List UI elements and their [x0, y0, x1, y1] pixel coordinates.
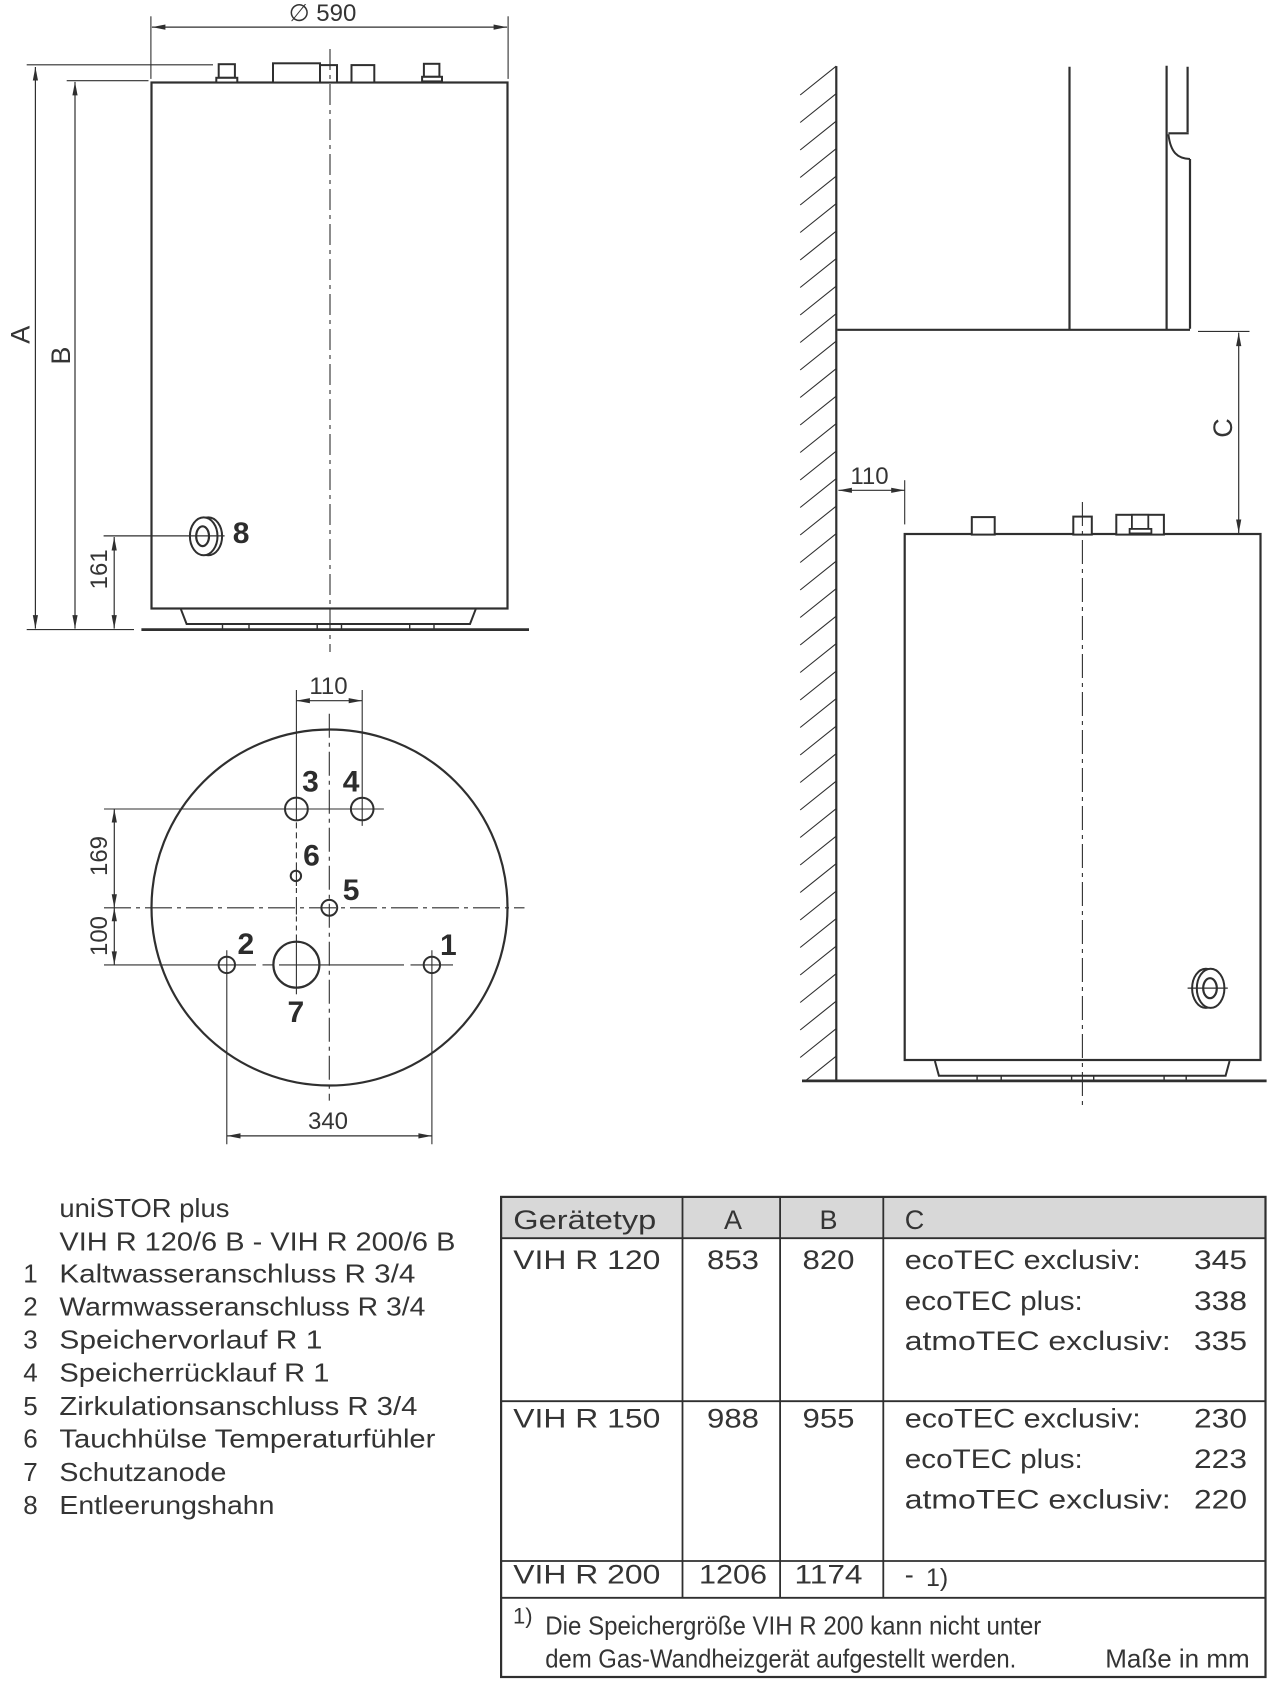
- svg-text:VIH R 150: VIH R 150: [513, 1404, 660, 1434]
- svg-text:ecoTEC exclusiv:: ecoTEC exclusiv:: [905, 1404, 1141, 1434]
- svg-text:853: 853: [707, 1245, 759, 1275]
- svg-text:7: 7: [23, 1457, 37, 1487]
- svg-text:335: 335: [1194, 1326, 1247, 1356]
- svg-text:Zirkulationsanschluss R 3/4: Zirkulationsanschluss R 3/4: [59, 1391, 417, 1421]
- svg-text:1206: 1206: [699, 1560, 767, 1590]
- svg-text:3: 3: [302, 766, 319, 799]
- svg-text:7: 7: [287, 996, 304, 1029]
- svg-text:1): 1): [513, 1604, 533, 1629]
- svg-text:340: 340: [308, 1108, 348, 1135]
- svg-text:Entleerungshahn: Entleerungshahn: [59, 1490, 274, 1520]
- svg-text:atmoTEC exclusiv:: atmoTEC exclusiv:: [905, 1484, 1171, 1514]
- svg-text:1174: 1174: [795, 1560, 863, 1590]
- svg-text:uniSTOR plus: uniSTOR plus: [59, 1193, 229, 1223]
- svg-text:8: 8: [23, 1490, 37, 1520]
- svg-text:2: 2: [23, 1291, 37, 1321]
- svg-text:223: 223: [1194, 1444, 1247, 1474]
- svg-text:6: 6: [23, 1424, 37, 1454]
- svg-text:ecoTEC plus:: ecoTEC plus:: [905, 1444, 1083, 1474]
- svg-text:820: 820: [803, 1245, 855, 1275]
- svg-text:Maße in mm: Maße in mm: [1105, 1644, 1249, 1674]
- svg-text:110: 110: [850, 463, 888, 490]
- svg-text:ecoTEC plus:: ecoTEC plus:: [905, 1286, 1083, 1316]
- svg-text:100: 100: [86, 916, 113, 956]
- svg-text:B: B: [819, 1205, 837, 1235]
- svg-text:8: 8: [233, 517, 250, 550]
- svg-text:338: 338: [1194, 1286, 1247, 1316]
- svg-text:VIH R 120: VIH R 120: [513, 1245, 660, 1275]
- svg-text:VIH R 200: VIH R 200: [513, 1560, 660, 1590]
- svg-text:169: 169: [86, 836, 113, 876]
- svg-text:A: A: [6, 326, 36, 344]
- svg-text:C: C: [905, 1205, 925, 1235]
- svg-text:230: 230: [1194, 1404, 1247, 1434]
- svg-text:345: 345: [1194, 1245, 1247, 1275]
- svg-text:A: A: [724, 1205, 742, 1235]
- svg-text:Kaltwasseranschluss R 3/4: Kaltwasseranschluss R 3/4: [59, 1259, 415, 1289]
- svg-text:Die Speichergröße VIH R 200 ka: Die Speichergröße VIH R 200 kann nicht u…: [545, 1611, 1041, 1641]
- svg-text:Schutzanode: Schutzanode: [59, 1457, 226, 1487]
- svg-text:4: 4: [23, 1358, 37, 1388]
- svg-text:-: -: [905, 1560, 914, 1590]
- svg-text:Speicherrücklauf R 1: Speicherrücklauf R 1: [59, 1358, 329, 1388]
- svg-text:Warmwasseranschluss R 3/4: Warmwasseranschluss R 3/4: [59, 1291, 425, 1321]
- svg-text:955: 955: [803, 1404, 855, 1434]
- svg-text:C: C: [1208, 418, 1238, 438]
- svg-text:6: 6: [303, 840, 320, 873]
- svg-text:VIH R 120/6 B - VIH R 200/6 B: VIH R 120/6 B - VIH R 200/6 B: [59, 1226, 455, 1256]
- svg-text:Tauchhülse Temperaturfühler: Tauchhülse Temperaturfühler: [59, 1424, 435, 1454]
- svg-text:dem Gas-Wandheizgerät aufgeste: dem Gas-Wandheizgerät aufgestellt werden…: [545, 1644, 1016, 1674]
- svg-text:Gerätetyp: Gerätetyp: [513, 1205, 656, 1235]
- svg-text:B: B: [46, 347, 76, 365]
- svg-text:5: 5: [343, 874, 360, 907]
- svg-text:atmoTEC exclusiv:: atmoTEC exclusiv:: [905, 1326, 1171, 1356]
- svg-text:988: 988: [707, 1404, 759, 1434]
- svg-text:ecoTEC exclusiv:: ecoTEC exclusiv:: [905, 1245, 1141, 1275]
- svg-text:Speichervorlauf R 1: Speichervorlauf R 1: [59, 1325, 322, 1355]
- svg-text:5: 5: [23, 1391, 37, 1421]
- svg-text:161: 161: [86, 549, 113, 589]
- svg-text:2: 2: [237, 928, 254, 961]
- svg-text:1: 1: [23, 1259, 37, 1289]
- svg-text:1: 1: [440, 929, 457, 962]
- svg-text:220: 220: [1194, 1484, 1247, 1514]
- svg-text:1): 1): [926, 1564, 948, 1592]
- svg-text:3: 3: [23, 1325, 37, 1355]
- svg-text:∅ 590: ∅ 590: [289, 0, 357, 27]
- svg-text:4: 4: [343, 766, 360, 799]
- svg-text:110: 110: [309, 673, 347, 700]
